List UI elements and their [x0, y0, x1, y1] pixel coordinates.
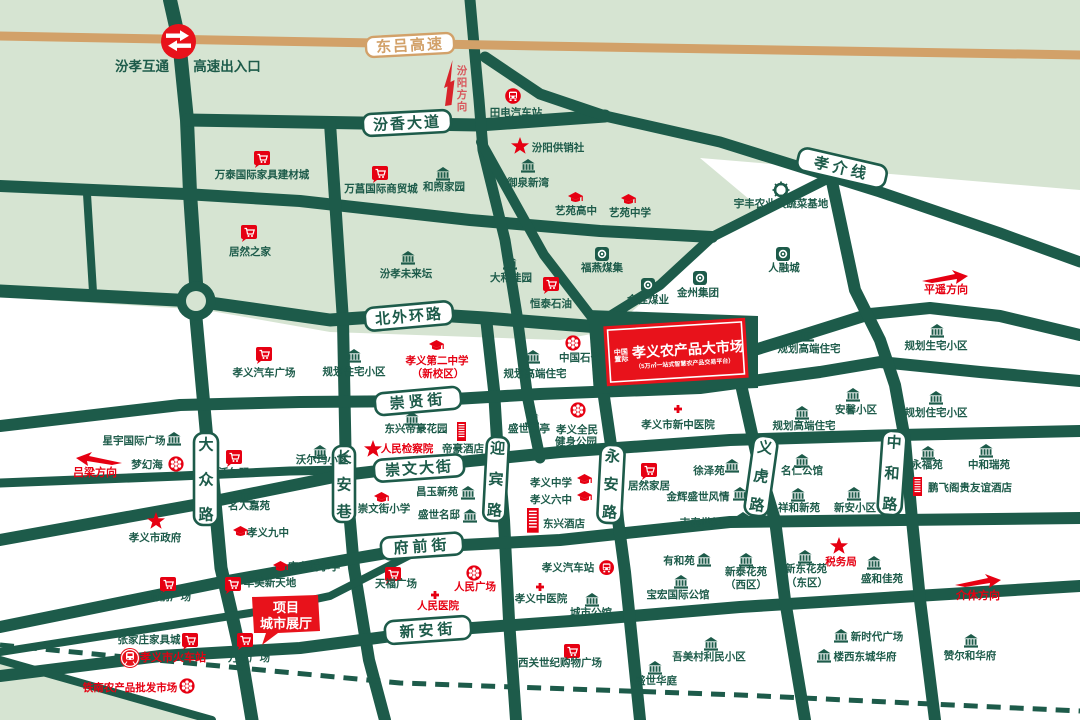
svg-text:宇丰农业大蔬菜基地: 宇丰农业大蔬菜基地 — [734, 197, 829, 210]
svg-text:方: 方 — [457, 88, 468, 101]
svg-text:金州集团: 金州集团 — [676, 286, 719, 299]
svg-text:万菖国际商贸城: 万菖国际商贸城 — [343, 182, 418, 195]
svg-text:孝义汽车站: 孝义汽车站 — [541, 561, 595, 574]
svg-text:孝义市新中医院: 孝义市新中医院 — [640, 418, 715, 431]
svg-text:安: 安 — [603, 475, 619, 494]
svg-text:崇文街小学: 崇文街小学 — [358, 502, 411, 515]
svg-text:城市展厅: 城市展厅 — [260, 616, 312, 631]
svg-text:汾孝互通: 汾孝互通 — [115, 58, 169, 74]
svg-text:人融城: 人融城 — [768, 261, 800, 274]
svg-text:介休方向: 介休方向 — [955, 588, 1000, 602]
svg-text:巷: 巷 — [335, 502, 352, 520]
svg-text:孝义中医院: 孝义中医院 — [514, 592, 568, 605]
svg-text:盛世兰亭: 盛世兰亭 — [508, 422, 550, 435]
svg-text:规划高端住宅: 规划高端住宅 — [773, 419, 836, 432]
svg-text:宾: 宾 — [488, 470, 504, 489]
svg-text:众: 众 — [198, 470, 213, 488]
svg-text:安馨小区: 安馨小区 — [835, 403, 877, 416]
svg-text:福燕煤集: 福燕煤集 — [580, 261, 623, 274]
svg-text:祥和新苑: 祥和新苑 — [778, 501, 820, 514]
svg-text:天福广场: 天福广场 — [375, 577, 417, 590]
svg-text:星宇国际广场: 星宇国际广场 — [103, 434, 166, 447]
svg-text:盛世华庭: 盛世华庭 — [635, 674, 677, 687]
svg-text:新时代广场: 新时代广场 — [851, 630, 904, 643]
svg-text:（东区）: （东区） — [786, 576, 828, 589]
svg-text:汾阳供销社: 汾阳供销社 — [532, 141, 585, 154]
svg-text:艺苑高中: 艺苑高中 — [555, 204, 597, 217]
svg-text:居然家居: 居然家居 — [628, 479, 670, 492]
svg-text:沃尔玛小区: 沃尔玛小区 — [296, 453, 349, 466]
svg-text:御泉新湾: 御泉新湾 — [506, 176, 549, 189]
svg-text:中和瑞苑: 中和瑞苑 — [968, 458, 1010, 471]
svg-text:东吕高速: 东吕高速 — [376, 35, 445, 57]
svg-text:孝义九中: 孝义九中 — [246, 526, 289, 539]
svg-text:（新校区）: （新校区） — [412, 367, 465, 380]
svg-text:路: 路 — [486, 501, 503, 520]
svg-text:向: 向 — [457, 100, 468, 113]
svg-text:孝义市火车站: 孝义市火车站 — [139, 650, 206, 664]
svg-text:吉泰世纪城: 吉泰世纪城 — [680, 516, 733, 529]
svg-text:万泰国际家具建材城: 万泰国际家具建材城 — [214, 168, 310, 181]
svg-text:义: 义 — [756, 438, 773, 458]
svg-text:阳: 阳 — [457, 77, 468, 89]
svg-text:新安小区: 新安小区 — [834, 501, 876, 514]
svg-text:孝义全民: 孝义全民 — [555, 423, 598, 436]
svg-text:梦幻海: 梦幻海 — [131, 458, 163, 471]
svg-text:府前广场: 府前广场 — [149, 590, 191, 603]
svg-text:汾香大道: 汾香大道 — [373, 113, 442, 135]
svg-text:永福苑: 永福苑 — [910, 458, 943, 471]
svg-text:大和佳园: 大和佳园 — [490, 271, 532, 284]
svg-text:楼西东城华府: 楼西东城华府 — [834, 650, 897, 663]
svg-text:规划高端住宅: 规划高端住宅 — [778, 342, 841, 355]
svg-text:高速出入口: 高速出入口 — [193, 58, 261, 74]
svg-text:万达广场: 万达广场 — [227, 651, 270, 664]
svg-text:盛和佳苑: 盛和佳苑 — [861, 572, 903, 585]
svg-text:平遥方向: 平遥方向 — [924, 282, 968, 296]
svg-text:孝义六中: 孝义六中 — [529, 493, 572, 506]
svg-text:人民广场: 人民广场 — [454, 580, 496, 593]
svg-text:永: 永 — [603, 447, 621, 466]
svg-text:有和苑: 有和苑 — [663, 554, 695, 567]
svg-text:铁南农产品批发市场: 铁南农产品批发市场 — [83, 681, 178, 694]
svg-text:路: 路 — [198, 505, 214, 523]
svg-text:名人嘉苑: 名人嘉苑 — [228, 499, 270, 512]
svg-text:迎: 迎 — [490, 439, 506, 458]
svg-text:人民医院: 人民医院 — [417, 599, 459, 612]
svg-text:宝宏国际公馆: 宝宏国际公馆 — [647, 588, 710, 601]
svg-text:新泰花苑: 新泰花苑 — [725, 565, 767, 578]
svg-text:金辉盛世风情: 金辉盛世风情 — [666, 490, 730, 503]
svg-text:孝义汽车广场: 孝义汽车广场 — [232, 366, 296, 379]
svg-text:规划住宅小区: 规划住宅小区 — [905, 406, 968, 419]
svg-text:恒泰石油: 恒泰石油 — [530, 297, 572, 310]
svg-text:规划生宅小区: 规划生宅小区 — [905, 339, 968, 352]
svg-text:税务局: 税务局 — [825, 555, 857, 568]
svg-text:府东街小学: 府东街小学 — [288, 560, 341, 573]
svg-text:沃尔玛: 沃尔玛 — [218, 466, 250, 479]
svg-text:居然之家: 居然之家 — [229, 245, 271, 258]
svg-text:规划住宅小区: 规划住宅小区 — [323, 365, 386, 378]
svg-text:赞尔和华府: 赞尔和华府 — [943, 649, 997, 662]
svg-text:规划高端住宅: 规划高端住宅 — [504, 367, 567, 380]
svg-text:吕梁方向: 吕梁方向 — [73, 465, 117, 479]
svg-text:金佳煤业: 金佳煤业 — [626, 293, 669, 306]
svg-text:项目: 项目 — [273, 600, 299, 615]
svg-text:和: 和 — [884, 465, 900, 483]
svg-text:中国石化: 中国石化 — [559, 351, 601, 364]
svg-text:盛世名邸: 盛世名邸 — [418, 508, 460, 521]
svg-text:新东花苑: 新东花苑 — [785, 562, 827, 575]
svg-text:西关世纪购物广场: 西关世纪购物广场 — [518, 656, 602, 669]
svg-text:（西区）: （西区） — [725, 578, 767, 591]
svg-text:华美新天地: 华美新天地 — [244, 576, 297, 589]
svg-text:孝义第二中学: 孝义第二中学 — [405, 354, 469, 367]
svg-text:路: 路 — [882, 495, 899, 514]
svg-text:人民检察院: 人民检察院 — [381, 442, 434, 455]
svg-text:帝豪酒店: 帝豪酒店 — [442, 442, 484, 455]
svg-text:虎: 虎 — [752, 466, 769, 486]
svg-text:城市公馆: 城市公馆 — [570, 606, 612, 619]
svg-text:张家庄家具城: 张家庄家具城 — [118, 633, 181, 646]
svg-text:吾美村利民小区: 吾美村利民小区 — [672, 650, 746, 663]
svg-text:名仁公馆: 名仁公馆 — [781, 464, 823, 477]
svg-text:中: 中 — [886, 433, 902, 452]
svg-text:鹏飞阁贵友谊酒店: 鹏飞阁贵友谊酒店 — [928, 481, 1012, 494]
svg-text:健身公园: 健身公园 — [555, 435, 597, 448]
svg-text:孝义中学: 孝义中学 — [529, 476, 572, 489]
svg-text:徐泽苑: 徐泽苑 — [692, 464, 725, 477]
svg-text:路: 路 — [602, 503, 619, 522]
svg-text:汾孝未来坛: 汾孝未来坛 — [380, 267, 433, 280]
svg-text:田电汽车站: 田电汽车站 — [490, 106, 543, 119]
svg-text:汾: 汾 — [457, 64, 468, 77]
svg-text:昌玉新苑: 昌玉新苑 — [416, 485, 458, 498]
svg-text:东兴帝豪花园: 东兴帝豪花园 — [385, 422, 448, 435]
svg-text:安: 安 — [336, 475, 351, 493]
svg-text:大: 大 — [198, 435, 213, 453]
svg-text:和煦家园: 和煦家园 — [422, 180, 465, 193]
svg-text:艺苑中学: 艺苑中学 — [609, 206, 651, 219]
svg-text:东兴酒店: 东兴酒店 — [543, 517, 585, 530]
svg-text:孝义市政府: 孝义市政府 — [128, 531, 182, 544]
